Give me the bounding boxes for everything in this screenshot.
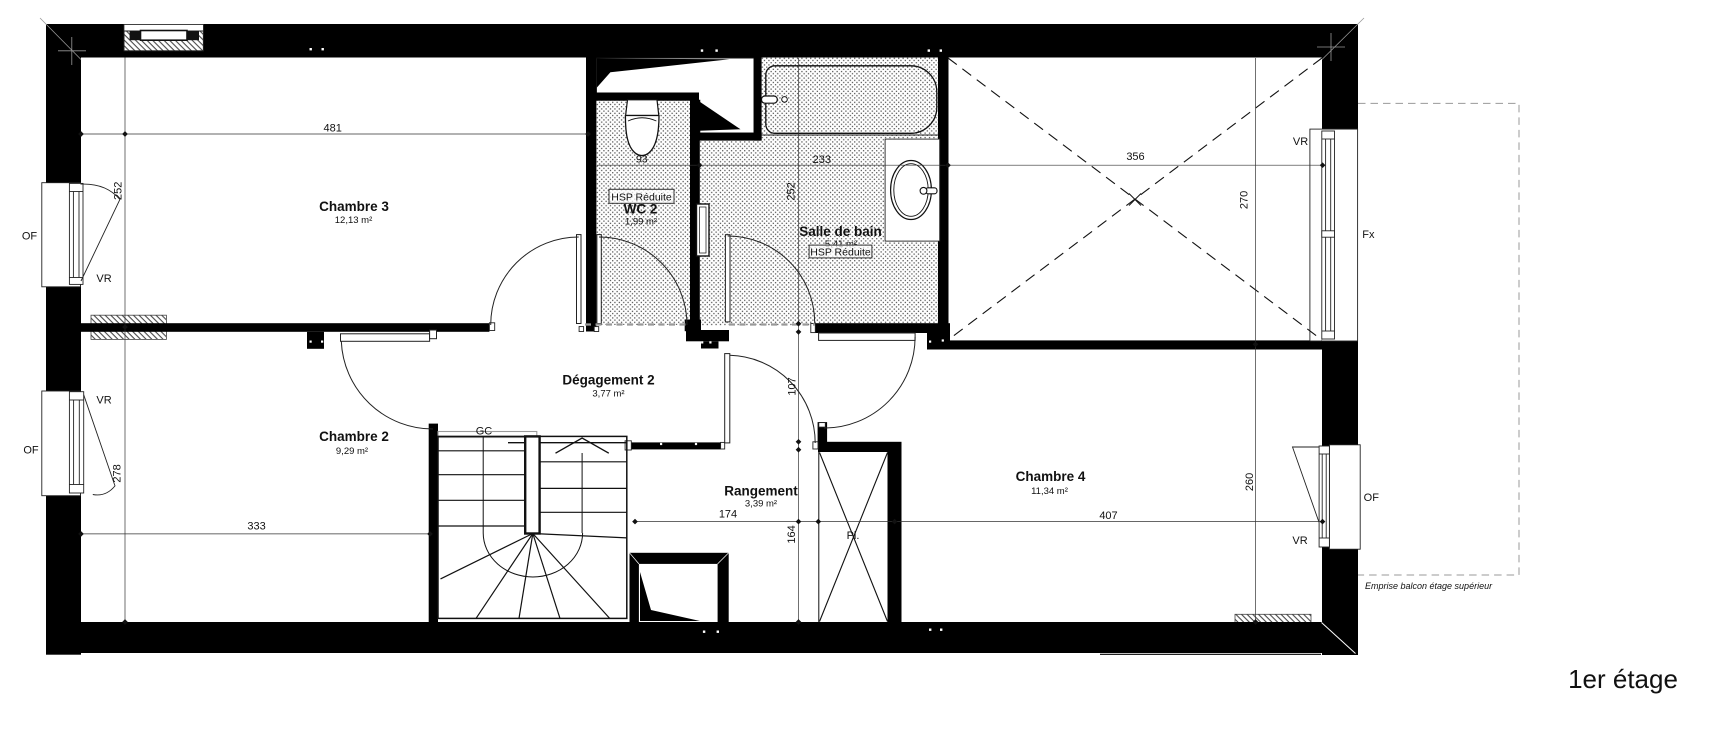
- svg-text:1er étage: 1er étage: [1568, 664, 1678, 694]
- svg-text:3,77 m²: 3,77 m²: [592, 389, 624, 400]
- svg-text:93: 93: [636, 154, 648, 166]
- svg-text:407: 407: [1099, 510, 1117, 522]
- svg-text:Chambre 2: Chambre 2: [319, 429, 389, 444]
- svg-text:OF: OF: [22, 231, 38, 243]
- svg-text:252: 252: [786, 182, 798, 200]
- svg-text:OF: OF: [1364, 492, 1380, 504]
- svg-text:Pl.: Pl.: [847, 530, 860, 542]
- svg-text:Emprise balcon étage supérieur: Emprise balcon étage supérieur: [1365, 581, 1493, 591]
- svg-text:12,13 m²: 12,13 m²: [335, 215, 373, 226]
- svg-text:OF: OF: [23, 445, 39, 457]
- svg-text:270: 270: [1239, 191, 1251, 209]
- svg-text:481: 481: [324, 123, 342, 135]
- svg-text:Salle de bain: Salle de bain: [799, 224, 882, 239]
- svg-text:VR: VR: [96, 395, 111, 407]
- svg-text:HSP Réduite: HSP Réduite: [810, 246, 871, 258]
- svg-text:HSP Réduite: HSP Réduite: [611, 191, 672, 203]
- svg-text:252: 252: [113, 182, 125, 200]
- svg-text:VR: VR: [1293, 136, 1308, 148]
- svg-text:11,34 m²: 11,34 m²: [1031, 486, 1068, 497]
- svg-text:Chambre 3: Chambre 3: [319, 199, 389, 214]
- svg-text:9,29 m²: 9,29 m²: [336, 446, 368, 457]
- svg-text:Fx: Fx: [1362, 229, 1375, 241]
- svg-text:260: 260: [1244, 473, 1256, 491]
- svg-text:1,99 m²: 1,99 m²: [625, 217, 657, 228]
- svg-text:VR: VR: [1292, 535, 1307, 547]
- svg-text:VR: VR: [96, 273, 111, 285]
- svg-text:164: 164: [786, 525, 798, 543]
- svg-text:356: 356: [1126, 151, 1144, 163]
- svg-text:174: 174: [719, 509, 737, 521]
- svg-text:Chambre 4: Chambre 4: [1016, 469, 1086, 484]
- svg-text:GC: GC: [476, 426, 493, 438]
- svg-text:Rangement: Rangement: [724, 484, 798, 499]
- svg-text:278: 278: [112, 464, 124, 482]
- svg-text:107: 107: [786, 377, 798, 395]
- svg-text:333: 333: [247, 521, 265, 533]
- svg-text:Dégagement 2: Dégagement 2: [562, 373, 654, 388]
- svg-text:233: 233: [813, 154, 831, 166]
- svg-text:3,39 m²: 3,39 m²: [745, 499, 777, 510]
